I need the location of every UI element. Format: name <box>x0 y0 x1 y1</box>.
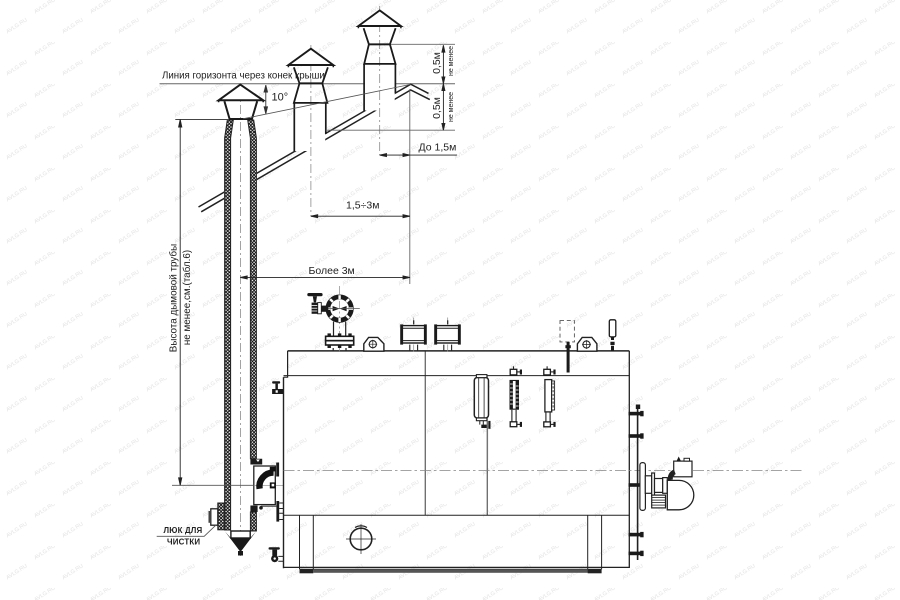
svg-text:10°: 10° <box>272 92 289 104</box>
svg-text:не менее,см.(табл.6): не менее,см.(табл.6) <box>182 250 193 345</box>
svg-text:1,5÷3м: 1,5÷3м <box>346 200 379 212</box>
svg-text:ЛЮК ДЛЯ: ЛЮК ДЛЯ <box>164 526 203 535</box>
svg-text:Более 3м: Более 3м <box>309 265 355 277</box>
svg-text:не менее: не менее <box>448 92 455 122</box>
svg-text:До 1,5м: До 1,5м <box>419 141 457 153</box>
svg-text:Линия горизонта через конек кр: Линия горизонта через конек крыши <box>162 70 325 81</box>
svg-text:0,5м: 0,5м <box>431 97 443 119</box>
svg-text:не менее: не менее <box>448 46 455 76</box>
svg-text:0,5м: 0,5м <box>431 52 443 74</box>
svg-text:Высота дымовой трубы: Высота дымовой трубы <box>169 244 180 352</box>
svg-text:ЧИСТКИ: ЧИСТКИ <box>167 537 200 546</box>
